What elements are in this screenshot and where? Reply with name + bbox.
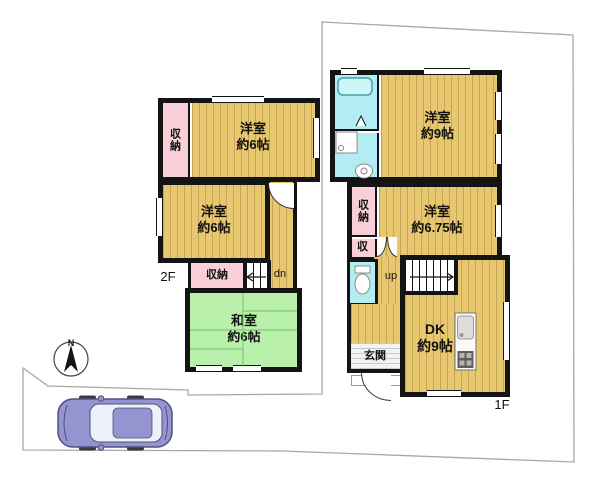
f1-stairs-up — [405, 260, 458, 295]
window — [495, 134, 502, 164]
window — [313, 118, 320, 158]
f2-closet-side-label: 収納 — [162, 108, 187, 172]
compass-icon: N — [54, 338, 88, 376]
window — [156, 198, 163, 236]
f2-room1-label: 洋室約6帖 — [192, 110, 314, 164]
f1-genkan-label: 玄関 — [350, 347, 400, 367]
f2-washitsu-label: 和室約6帖 — [192, 302, 296, 356]
f2-stairs-label: dn — [266, 268, 294, 282]
compass-north-label: N — [68, 338, 75, 348]
f1-bathroom — [335, 75, 379, 131]
floorplan-canvas: 収納 洋室約6帖 洋室約6帖 収納 和室約6帖 2F dn 洋室約9帖 収納 収… — [0, 0, 600, 485]
window — [212, 96, 264, 103]
f2-room2-label: 洋室約6帖 — [163, 192, 265, 248]
f2-closet-bottom-label: 収納 — [190, 263, 244, 289]
window — [495, 205, 502, 237]
f2-floor-label: 2F — [154, 269, 182, 285]
f1-washroom — [335, 133, 379, 177]
f1-room1-label: 洋室約9帖 — [380, 100, 495, 152]
f1-stairs-label: up — [378, 270, 404, 284]
window — [424, 68, 470, 75]
f1-toilet-room — [347, 259, 378, 306]
f1-closet-side-label: 収納 — [351, 189, 374, 233]
f1-dk-label: DK約9帖 — [403, 314, 467, 362]
window — [427, 390, 461, 397]
window — [503, 302, 510, 360]
window — [341, 68, 357, 75]
window — [233, 365, 261, 372]
f1-floor-label: 1F — [488, 397, 516, 413]
f1-entrance-door-arc — [361, 373, 391, 401]
window — [495, 92, 502, 120]
car-icon — [58, 396, 172, 451]
f1-closet-small-label: 収 — [351, 240, 374, 256]
f1-hallway — [347, 304, 404, 345]
window — [196, 365, 222, 372]
